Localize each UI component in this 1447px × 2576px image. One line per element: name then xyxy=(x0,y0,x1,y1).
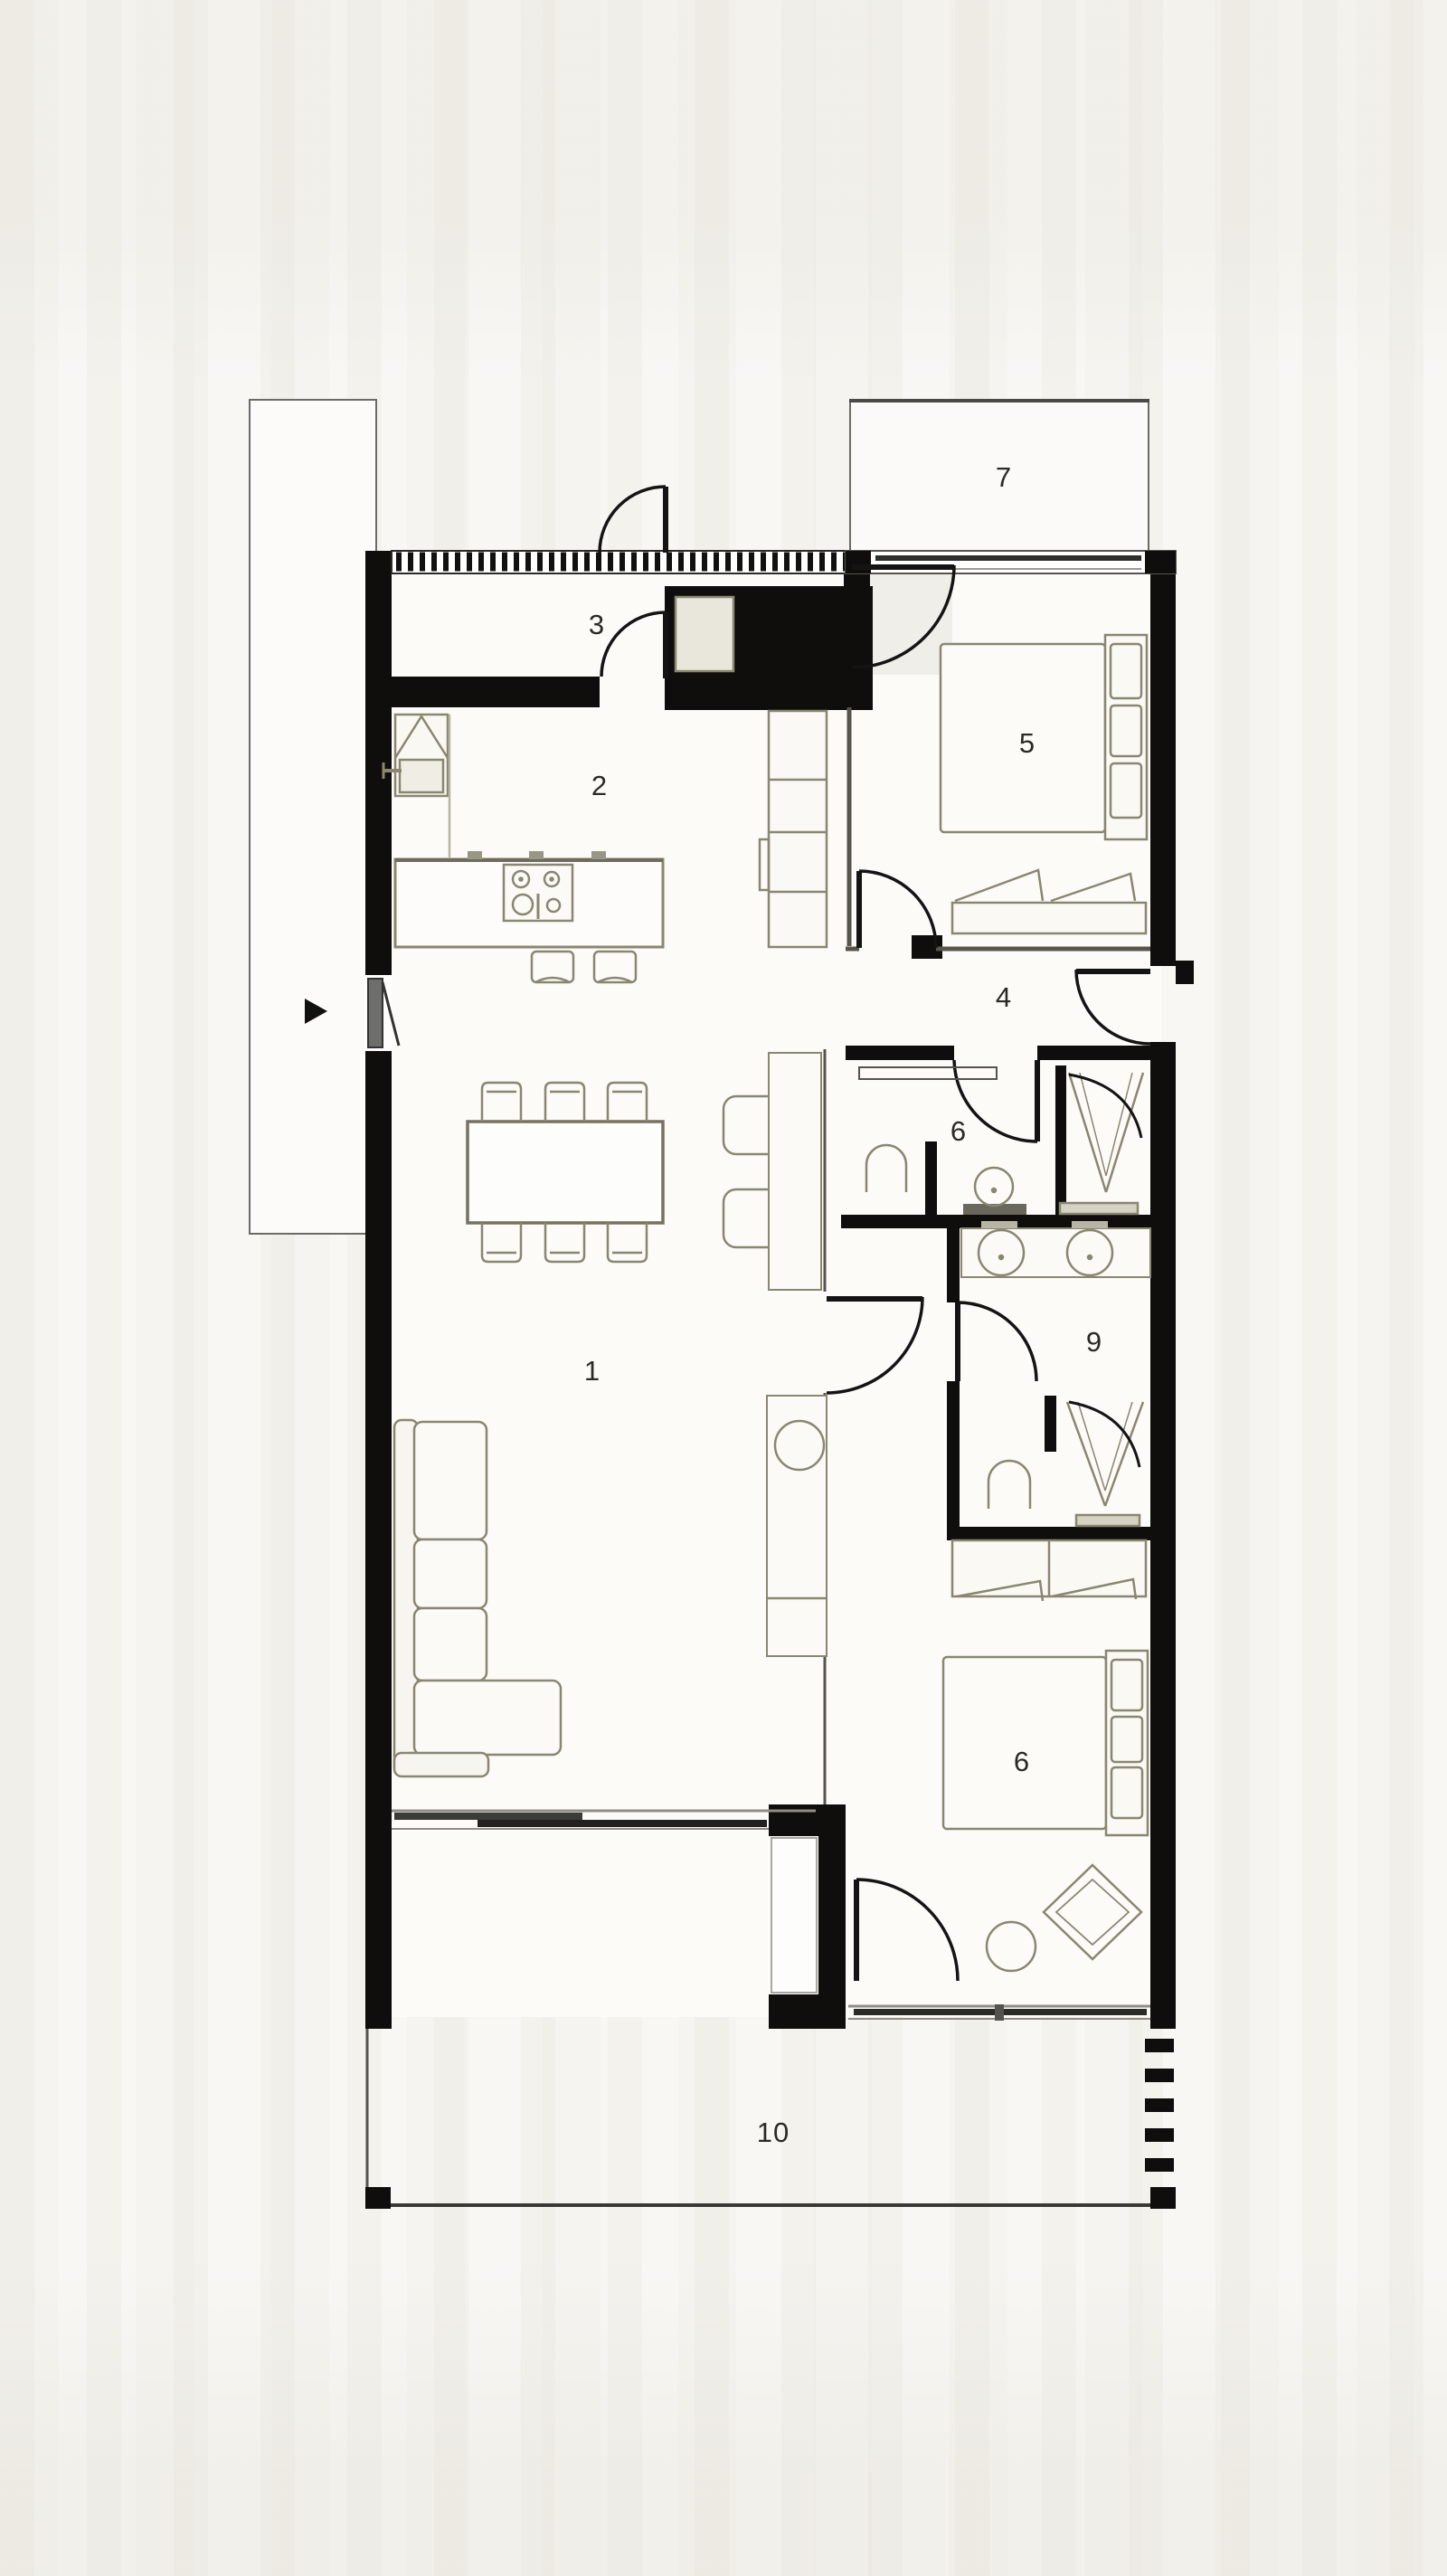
sideboard-lower xyxy=(767,1396,827,1656)
room-label-bedroom-top: 5 xyxy=(1019,727,1036,760)
hall-bath-wall-a xyxy=(846,1046,954,1060)
double-vanity xyxy=(961,1221,1150,1277)
room-label-bathroom: 6 xyxy=(950,1115,967,1148)
tall-cabinets xyxy=(760,711,827,947)
shower-step xyxy=(1076,1515,1140,1526)
niche-wall-top xyxy=(769,1804,846,1836)
front-door xyxy=(600,487,666,553)
bedroom-bottom-window xyxy=(848,2004,1150,2021)
floor-plan-drawing xyxy=(0,0,1447,2576)
ensuite-left-wall-upper xyxy=(947,1227,960,1302)
hatched-top-wall xyxy=(392,551,859,573)
entry-closet xyxy=(676,597,733,671)
room-label-ensuite: 9 xyxy=(1086,1326,1102,1359)
hall-bath-wall-b xyxy=(1037,1046,1150,1060)
room-label-entry-hall: 3 xyxy=(589,609,605,641)
bath-partition xyxy=(925,1141,937,1215)
right-wall-nib xyxy=(1176,961,1194,984)
entry-hall-bottom-wall xyxy=(365,677,600,707)
room-label-kitchen: 2 xyxy=(591,770,608,802)
terrace-dashed-strip xyxy=(1145,2039,1174,2172)
room-label-living: 1 xyxy=(584,1355,601,1387)
sideboard-upper xyxy=(769,1053,821,1290)
room-label-bedroom-bottom: 6 xyxy=(1014,1746,1030,1778)
right-wall-lower xyxy=(1150,1042,1176,2029)
wardrobe xyxy=(952,1540,1146,1601)
shower-step xyxy=(1060,1203,1138,1214)
room-label-terrace: 10 xyxy=(757,2117,790,2149)
floor-plan-page: { "plan": { "type": "architectural-floor… xyxy=(0,0,1447,2576)
right-wall-upper xyxy=(1150,551,1176,966)
niche-wall-bottom xyxy=(769,1994,846,2029)
ensuite-left-wall-lower xyxy=(947,1381,960,1527)
cooktop-burners xyxy=(504,865,572,921)
bed xyxy=(943,1651,1148,1835)
bedroom-top-window xyxy=(846,551,1176,573)
left-wall-lower xyxy=(365,1051,392,2029)
side-path-outline xyxy=(250,400,376,1234)
room-label-hallway: 4 xyxy=(996,981,1012,1014)
bed xyxy=(941,635,1147,839)
ensuite-shower-nib xyxy=(1045,1396,1056,1452)
dining-table xyxy=(468,1122,663,1223)
ensuite-bottom-wall xyxy=(947,1527,1150,1540)
bath-shower-wall xyxy=(1055,1065,1066,1215)
left-wall-upper xyxy=(365,551,392,975)
terrace-niche xyxy=(771,1838,817,1993)
room-label-porch: 7 xyxy=(996,461,1012,494)
